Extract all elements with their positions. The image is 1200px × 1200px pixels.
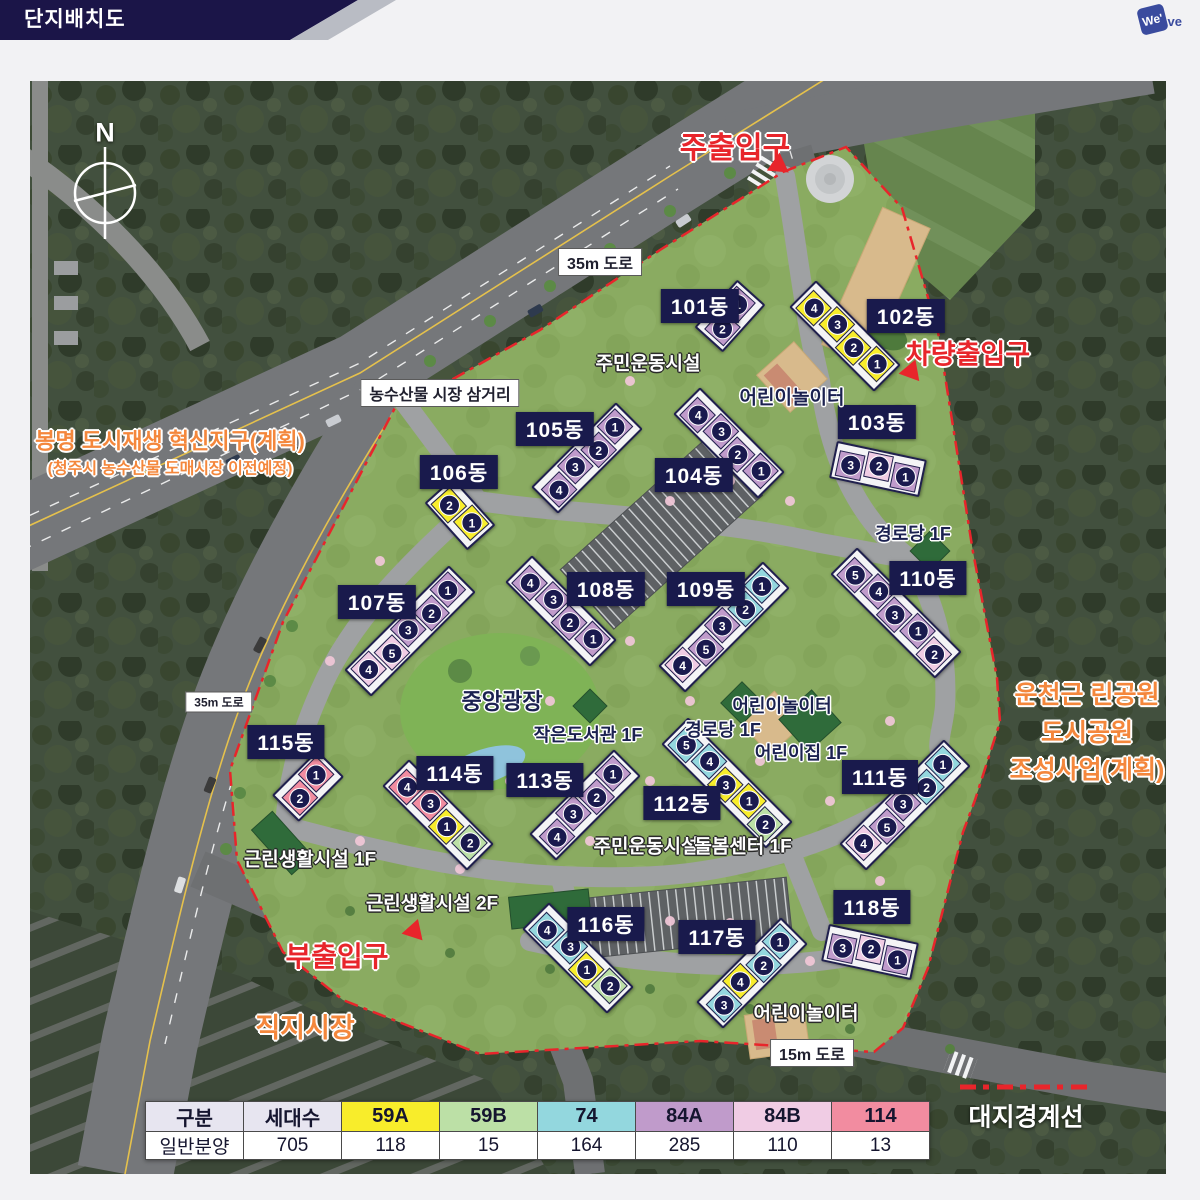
building-unit: 2 (863, 451, 894, 482)
building-unit: 1 (881, 945, 912, 976)
unit-number-badge: 3 (563, 803, 584, 824)
unit-number-badge: 1 (894, 467, 915, 488)
unit-number-badge: 3 (419, 793, 440, 814)
building-label-105동: 105동 (516, 412, 594, 446)
unit-number-badge: 4 (547, 826, 568, 847)
facility-label: 중앙광장 (462, 684, 543, 716)
unit-number-badge: 4 (358, 658, 379, 679)
unit-number-badge: 1 (886, 950, 907, 971)
unit-number-badge: 1 (576, 959, 597, 980)
facility-label: 어린이놀이터 (740, 383, 845, 410)
unit-number-badge: 5 (844, 565, 865, 586)
weve-logo-icon: We' (1136, 3, 1169, 36)
unit-number-badge: 4 (853, 832, 874, 853)
building-label-104동: 104동 (655, 458, 733, 492)
unit-number-badge: 2 (868, 456, 889, 477)
building-label-101동: 101동 (661, 289, 739, 323)
facility-label: 주민운동시설 (596, 349, 701, 376)
map-annotations: N 대지경계선 12101동4321102동321103동4321104동123… (30, 81, 1166, 1174)
building-bar-115동: 12 (272, 750, 344, 822)
legend-column-header: 59B (440, 1102, 538, 1132)
facility-label: 어린이집 1F (755, 739, 847, 765)
facility-label: 작은도서관 1F (534, 721, 643, 747)
unit-number-badge: 2 (599, 975, 620, 996)
boundary-legend-label: 대지경계선 (960, 1098, 1092, 1134)
building-label-112동: 112동 (643, 786, 720, 820)
unit-number-badge: 2 (916, 776, 937, 797)
legend-cell: 118 (342, 1132, 440, 1160)
planned-area-label: 봉명 도시재생 혁신지구(계획)(청주시 농수산물 도매시장 이전예정) (35, 425, 305, 482)
building-label-109동: 109동 (667, 572, 745, 606)
building-unit: 2 (855, 934, 886, 965)
legend-cell: 164 (538, 1132, 636, 1160)
unit-number-badge: 4 (672, 654, 693, 675)
boundary-legend-line (960, 1085, 1092, 1090)
road-name-label: 35m 도로 (558, 248, 642, 276)
unit-number-badge: 1 (582, 628, 603, 649)
building-label-106동: 106동 (420, 455, 498, 489)
legend-cell: 일반분양 (146, 1132, 244, 1160)
building-label-107동: 107동 (338, 585, 416, 619)
legend-column-header: 구분 (146, 1102, 244, 1132)
unit-number-badge: 1 (604, 416, 625, 437)
legend-column-header: 세대수 (244, 1102, 342, 1132)
unit-number-badge: 3 (826, 314, 847, 335)
unit-number-badge: 2 (753, 954, 774, 975)
unit-number-badge: 1 (907, 621, 928, 642)
legend-cell: 110 (734, 1132, 832, 1160)
unit-number-badge: 3 (712, 615, 733, 636)
road-name-label: 15m 도로 (770, 1039, 854, 1067)
building-bar-111동: 12354 (839, 739, 971, 871)
unit-number-badge: 4 (536, 920, 557, 941)
building-unit: 1 (889, 462, 920, 493)
unit-number-badge: 2 (459, 832, 480, 853)
unit-number-badge: 1 (751, 575, 772, 596)
unit-number-badge: 4 (549, 479, 570, 500)
legend-column-header: 84A (636, 1102, 734, 1132)
planned-area-label-line: 조성사업(계획) (1010, 752, 1165, 790)
legend-cell: 15 (440, 1132, 538, 1160)
page-title: 단지배치도 (24, 0, 126, 40)
building-bar-103동: 321 (829, 441, 927, 497)
unit-number-badge: 4 (687, 405, 708, 426)
legend-table-header-row: 구분세대수59A59B7484A84B114 (146, 1102, 930, 1132)
unit-number-badge: 1 (306, 764, 327, 785)
unit-number-badge: 5 (695, 638, 716, 659)
legend-table: 구분세대수59A59B7484A84B114 일반분양7051181516428… (145, 1101, 930, 1160)
unit-number-badge: 4 (803, 298, 824, 319)
entrance-label: 부출입구 (285, 935, 388, 975)
unit-number-badge: 1 (461, 512, 482, 533)
unit-number-badge: 1 (436, 816, 457, 837)
facility-label: 근린생활시설 1F (244, 845, 376, 872)
unit-number-badge: 4 (698, 751, 719, 772)
planned-area-label-line: 봉명 도시재생 혁신지구(계획) (35, 425, 305, 458)
weve-logo: We' ve (1139, 6, 1182, 33)
facility-label: 어린이놀이터 (754, 999, 859, 1026)
legend-column-header: 84B (734, 1102, 832, 1132)
planned-area-label: 직지시장 (255, 1008, 354, 1049)
road-name-label: 35m 도로 (185, 692, 252, 713)
unit-number-badge: 4 (396, 777, 417, 798)
unit-number-badge: 4 (730, 971, 751, 992)
building-label-117동: 117동 (678, 920, 755, 954)
legend-cell: 13 (832, 1132, 930, 1160)
building-label-113동: 113동 (506, 763, 583, 797)
building-label-118동: 118동 (833, 890, 910, 924)
header-bar: 단지배치도 We' ve (0, 0, 1200, 40)
legend-column-header: 74 (538, 1102, 636, 1132)
unit-number-badge: 3 (714, 994, 735, 1015)
entrance-arrow-icon (402, 916, 429, 941)
unit-number-badge: 3 (840, 455, 861, 476)
site-map: N 대지경계선 12101동4321102동321103동4321104동123… (30, 81, 1166, 1174)
planned-area-label-line: 운천근 린공원 (1010, 677, 1165, 715)
building-label-111동: 111동 (842, 760, 918, 794)
building-label-116동: 116동 (567, 907, 644, 941)
building-unit: 3 (827, 933, 858, 964)
facility-label: 주민운동시설 (594, 832, 699, 859)
unit-number-badge: 1 (437, 579, 458, 600)
unit-number-badge: 5 (876, 816, 897, 837)
unit-number-badge: 5 (381, 642, 402, 663)
legend-cell: 705 (244, 1132, 342, 1160)
building-label-115동: 115동 (247, 725, 324, 759)
building-label-110동: 110동 (889, 561, 966, 595)
planned-area-label: 운천근 린공원도시공원조성사업(계획) (1010, 677, 1165, 790)
facility-label: 경로당 1F (875, 520, 951, 546)
unit-number-badge: 2 (860, 939, 881, 960)
road-name-label: 농수산물 시장 삼거리 (360, 379, 519, 407)
unit-number-badge: 1 (750, 460, 771, 481)
building-label-114동: 114동 (416, 756, 493, 790)
facility-label: 경로당 1F (685, 716, 761, 742)
unit-number-badge: 3 (398, 619, 419, 640)
unit-number-badge: 4 (867, 581, 888, 602)
unit-number-badge: 1 (602, 763, 623, 784)
unit-number-badge: 2 (843, 337, 864, 358)
unit-number-badge: 3 (565, 456, 586, 477)
unit-number-badge: 2 (438, 495, 459, 516)
unit-number-badge: 1 (769, 931, 790, 952)
building-bar-118동: 321 (821, 924, 919, 980)
facility-label: 근린생활시설 2F (366, 889, 498, 916)
unit-number-badge: 2 (923, 644, 944, 665)
legend-column-header: 114 (832, 1102, 930, 1132)
building-label-102동: 102동 (867, 299, 945, 333)
entrance-label: 차량출입구 (906, 333, 1030, 372)
unit-number-badge: 2 (289, 787, 310, 808)
legend-table-data-row: 일반분양7051181516428511013 (146, 1132, 930, 1160)
legend-cell: 285 (636, 1132, 734, 1160)
weve-logo-tail: ve (1168, 14, 1182, 29)
building-bar-102동: 4321 (789, 280, 901, 392)
building-label-108동: 108동 (567, 572, 645, 606)
planned-area-label-line: 직지시장 (255, 1008, 354, 1049)
planned-area-label-line: (청주시 농수산물 도매시장 이전예정) (35, 458, 305, 482)
unit-number-badge: 1 (738, 791, 759, 812)
unit-number-badge: 3 (884, 604, 905, 625)
building-unit: 3 (835, 450, 866, 481)
planned-area-label-line: 도시공원 (1010, 714, 1165, 752)
unit-number-badge: 3 (893, 793, 914, 814)
entrance-arrow-icon (897, 360, 920, 385)
unit-number-badge: 3 (542, 589, 563, 610)
unit-number-badge: 1 (866, 353, 887, 374)
unit-number-badge: 2 (559, 612, 580, 633)
boundary-legend: 대지경계선 (960, 1085, 1092, 1134)
facility-label: 돌봄센터 1F (694, 832, 791, 859)
unit-number-badge: 1 (932, 753, 953, 774)
unit-number-badge: 4 (519, 573, 540, 594)
unit-number-badge: 3 (832, 938, 853, 959)
facility-label: 어린이놀이터 (732, 692, 831, 718)
legend-column-header: 59A (342, 1102, 440, 1132)
unit-number-badge: 2 (586, 786, 607, 807)
unit-number-badge: 2 (421, 602, 442, 623)
building-label-103동: 103동 (838, 405, 916, 439)
site-plan-page: 단지배치도 We' ve (0, 0, 1200, 1200)
compass-north-label: N (95, 118, 115, 149)
unit-number-badge: 3 (710, 421, 731, 442)
